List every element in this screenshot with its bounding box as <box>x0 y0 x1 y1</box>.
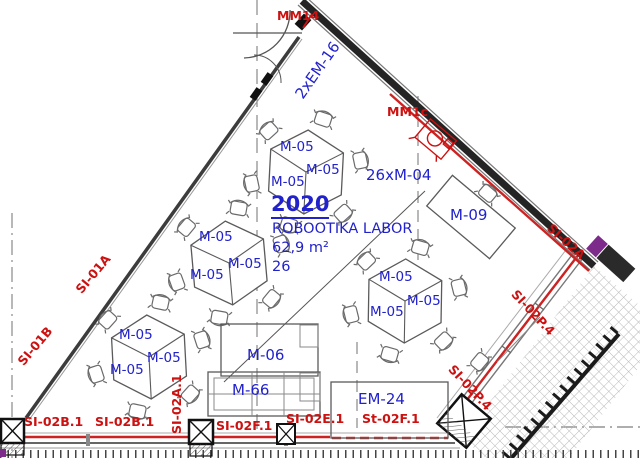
room-area: 62,9 m² <box>272 240 329 256</box>
label-si02b1-1: SI-02B.1 <box>24 416 83 429</box>
label-m05: M-05 <box>280 141 314 155</box>
label-si02e1: SI-02E.1 <box>286 413 344 426</box>
label-m05: M-05 <box>407 295 441 309</box>
label-m05: M-05 <box>147 352 181 366</box>
column-small <box>277 424 295 444</box>
label-m05: M-05 <box>379 271 413 285</box>
label-m66: M-66 <box>232 383 269 398</box>
column-left <box>0 419 24 457</box>
room-capacity: 26 <box>272 259 290 275</box>
label-m09: M-09 <box>450 208 487 223</box>
label-em24: EM-24 <box>358 392 405 407</box>
label-mm14: MM14 <box>277 10 319 23</box>
label-m05: M-05 <box>306 164 340 178</box>
label-m05: M-05 <box>271 176 305 190</box>
label-si02f1: SI-02F.1 <box>216 420 272 433</box>
column-mid <box>189 420 213 456</box>
label-mm1c: MM1c <box>387 106 428 119</box>
label-st02f1: St-02F.1 <box>362 413 420 426</box>
label-m05: M-05 <box>110 364 144 378</box>
floor-plan: 2020 ROBOOTIKA LABOR 62,9 m² 26 M-05 M-0… <box>0 0 640 458</box>
table-m05-4 <box>329 223 481 379</box>
label-m05: M-05 <box>199 231 233 245</box>
label-m05: M-05 <box>228 258 262 272</box>
label-m04-qty: 26xM-04 <box>366 168 431 183</box>
label-m05: M-05 <box>190 269 224 283</box>
room-name: ROBOOTIKA LABOR <box>272 221 412 237</box>
label-m05: M-05 <box>119 329 153 343</box>
room-number: 2020 <box>271 192 329 219</box>
label-si02b1-2: SI-02B.1 <box>95 416 154 429</box>
label-m05: M-05 <box>370 306 404 320</box>
label-m06: M-06 <box>247 348 284 363</box>
label-si02a1: SI-02A.1 <box>171 374 184 434</box>
